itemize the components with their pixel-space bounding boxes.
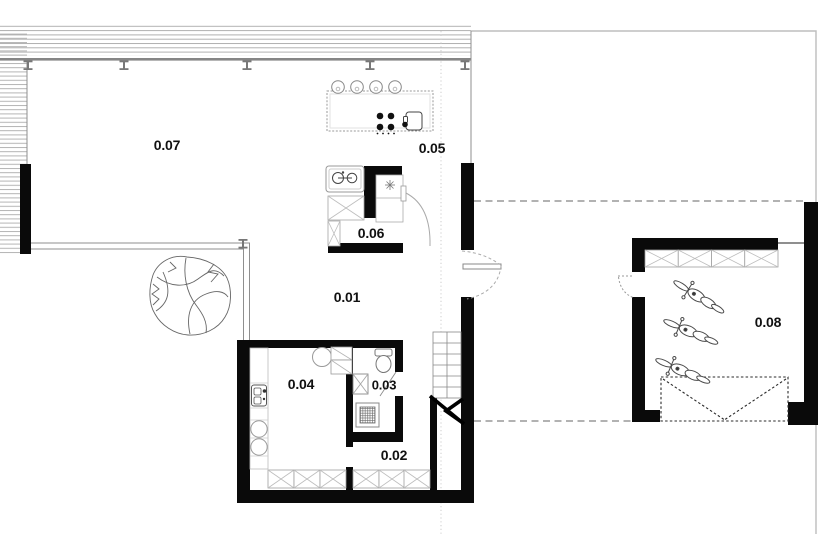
floor-plan: 0.07 0.05 0.06 0.01 0.04 0.03 0.02 0.08 xyxy=(0,0,818,534)
washer-icon xyxy=(251,421,267,437)
room-label-0-03: 0.03 xyxy=(372,379,397,392)
motorcycle-icon xyxy=(652,350,714,391)
room-label-0-08: 0.08 xyxy=(755,315,781,329)
site-boundary-line xyxy=(471,31,816,534)
utility-fixtures xyxy=(250,347,352,469)
motorcycle-icon xyxy=(669,273,729,321)
cabinet-icon xyxy=(331,347,352,374)
entrance-door-swing-icon xyxy=(462,251,501,299)
room-label-0-02: 0.02 xyxy=(381,448,407,462)
boiler-icon xyxy=(385,180,395,190)
floor-plan-drawing xyxy=(0,0,818,534)
tree-icon xyxy=(150,256,231,335)
washing-machine-icon xyxy=(353,374,368,394)
stairs-icon xyxy=(433,332,461,398)
room-label-0-06: 0.06 xyxy=(358,226,384,240)
door-swing-icon xyxy=(406,193,430,246)
shelving-icon xyxy=(645,250,778,267)
room-label-0-05: 0.05 xyxy=(419,141,445,155)
motorcycle-icon xyxy=(660,311,722,352)
room-label-0-01: 0.01 xyxy=(334,290,360,304)
tall-cabinet xyxy=(376,175,406,222)
room-label-0-07: 0.07 xyxy=(154,138,180,152)
dryer-icon xyxy=(251,439,267,455)
room-label-0-04: 0.04 xyxy=(288,377,314,391)
kitchen-island xyxy=(327,81,433,135)
shower-icon xyxy=(356,403,379,427)
toilet-icon xyxy=(375,349,392,373)
garage-side-door-swing-icon xyxy=(618,276,633,298)
table-icon xyxy=(313,348,332,367)
garage-door-icon xyxy=(661,377,788,421)
laundry-sink-icon xyxy=(252,385,267,406)
kitchen-sink-icon xyxy=(326,166,364,192)
